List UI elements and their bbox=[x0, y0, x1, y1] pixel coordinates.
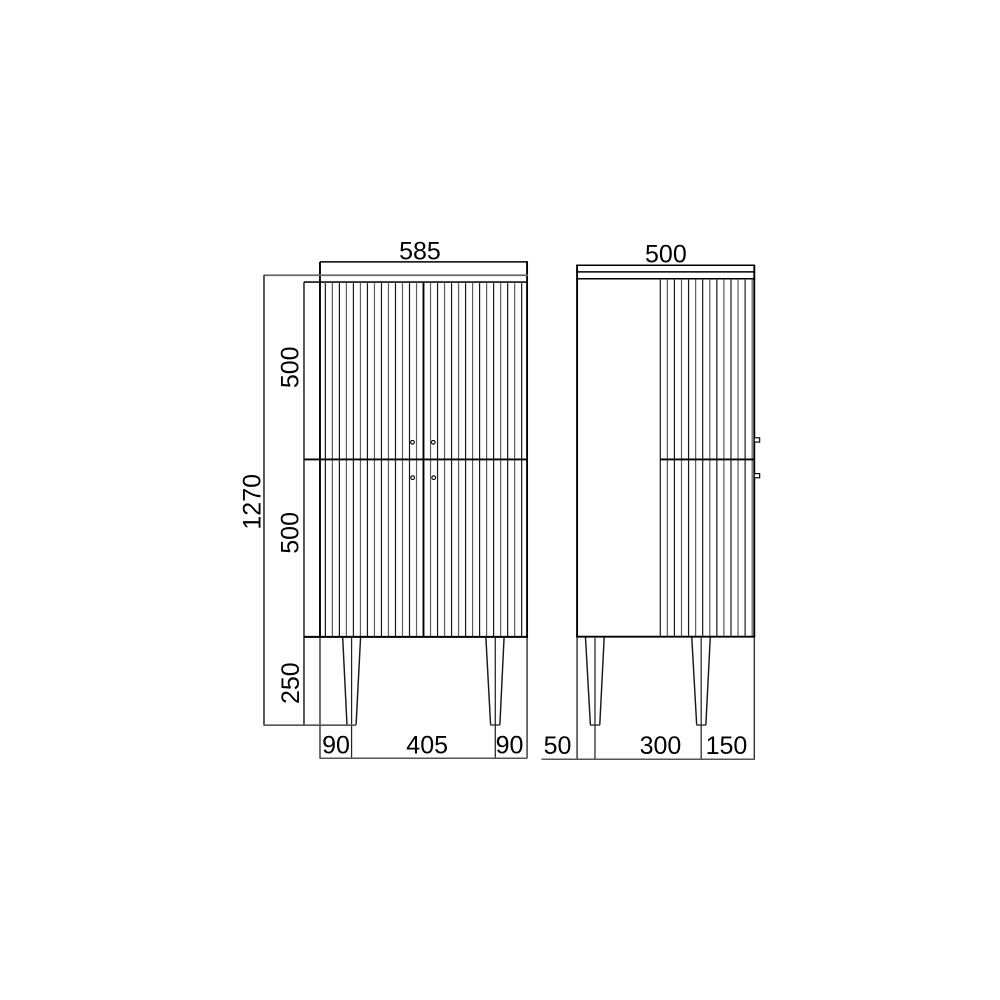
svg-text:150: 150 bbox=[706, 732, 748, 760]
svg-text:50: 50 bbox=[544, 732, 572, 760]
svg-text:300: 300 bbox=[640, 732, 682, 760]
svg-text:90: 90 bbox=[322, 731, 350, 759]
svg-text:500: 500 bbox=[276, 346, 304, 388]
svg-text:500: 500 bbox=[276, 512, 304, 554]
svg-text:500: 500 bbox=[645, 240, 687, 268]
svg-text:250: 250 bbox=[277, 662, 305, 704]
svg-text:90: 90 bbox=[496, 731, 524, 759]
svg-text:405: 405 bbox=[406, 731, 448, 759]
svg-text:1270: 1270 bbox=[238, 474, 266, 530]
svg-text:585: 585 bbox=[399, 237, 441, 265]
